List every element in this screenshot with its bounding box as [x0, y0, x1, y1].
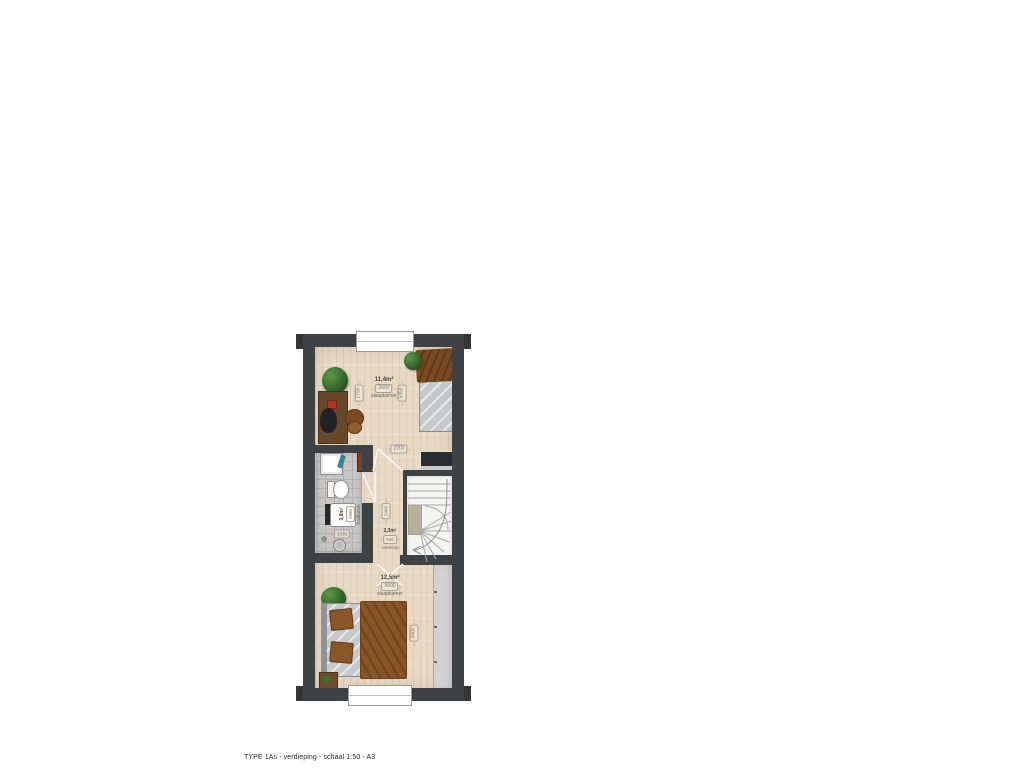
dim-2750: ◁ 2750 ▷ — [355, 380, 364, 405]
shower-head-icon — [321, 536, 327, 542]
dim-arrow-right-icon: ▷ — [398, 538, 401, 542]
wall-outer-right — [452, 334, 464, 701]
room-label-landing: 2,3m² ◁ 940 ▷ overloop — [379, 528, 401, 550]
dim-arrow-left-icon: ◁ — [384, 520, 388, 523]
room-area: 2,3m² — [383, 528, 396, 534]
dim-arrow-right-icon: ▷ — [400, 380, 404, 383]
room-name: slaapkamer — [377, 592, 403, 597]
room-area: 12,5m² — [380, 575, 399, 581]
room-dim: ◁ 3600 ▷ — [377, 582, 402, 591]
room-dim: ◁ 940 ▷ — [379, 535, 401, 544]
dim-arrow-right-icon: ▷ — [357, 380, 361, 383]
dim-arrow-right-icon: ▷ — [394, 387, 397, 391]
dim-arrow-left-icon: ◁ — [400, 403, 404, 406]
dim-1330: ◁ 1330 ▷ — [330, 530, 354, 539]
wall-bedroom-bottom-top — [400, 555, 452, 565]
room-area: 11,4m² — [375, 377, 394, 383]
room-name: badkamer — [356, 504, 361, 524]
floor-plan: 11,4m² ◁ 3600 ▷ slaapkamer ◁ 2750 ▷ ◁ 54… — [0, 0, 1024, 768]
single-bed-duvet — [415, 348, 455, 383]
dim-2200: ◁ 2200 ▷ — [386, 445, 411, 454]
wardrobe — [433, 565, 453, 688]
desk-chair — [320, 408, 337, 433]
nightstand-plant — [323, 675, 331, 683]
dim-arrow-left-icon: ◁ — [371, 387, 374, 391]
room-label-bedroom-top: 11,4m² ◁ 3600 ▷ slaapkamer — [371, 377, 397, 399]
dim-arrow-left-icon: ◁ — [330, 532, 333, 536]
plant-desk — [322, 367, 348, 394]
dim-arrow-right-icon: ▷ — [349, 502, 353, 505]
dim-arrow-right-icon: ▷ — [409, 447, 412, 451]
footstool — [347, 421, 362, 434]
dim-arrow-right-icon: ▷ — [400, 585, 403, 589]
double-bed-headboard — [321, 603, 327, 675]
room-dim: ◁ 3600 ▷ — [371, 384, 396, 393]
stair-landing-mat — [408, 505, 422, 535]
room-name: slaapkamer — [371, 394, 397, 399]
pillow-1 — [329, 608, 354, 631]
built-in-closet — [420, 451, 453, 470]
sheet-caption: TYPE 1As - verdieping - schaal 1:50 - A3 — [244, 754, 375, 761]
dim-arrow-right-icon: ▷ — [412, 620, 416, 623]
shower-drain — [333, 539, 346, 552]
double-bed-duvet — [360, 601, 407, 679]
plant-window — [404, 352, 422, 370]
dim-arrow-left-icon: ◁ — [386, 447, 389, 451]
toilet-bowl — [333, 480, 349, 499]
room-label-bedroom-bottom: 12,5m² ◁ 3600 ▷ slaapkamer — [377, 575, 403, 597]
wall-stub-top-left — [296, 334, 303, 349]
wall-stair-top — [403, 470, 452, 476]
room-name: overloop — [381, 545, 398, 550]
dim-arrow-right-icon: ▷ — [351, 532, 354, 536]
wall-bathroom-right-upper — [362, 445, 373, 472]
pillow-2 — [329, 641, 354, 664]
linework — [0, 0, 1024, 768]
wall-outer-left — [303, 334, 315, 701]
wall-stub-top-right — [464, 334, 471, 349]
window-bottom — [348, 685, 412, 706]
wall-stub-bottom-left — [296, 686, 303, 701]
window-top — [356, 331, 414, 352]
dim-arrow-left-icon: ◁ — [379, 538, 382, 542]
dim-3400: ◁ 3400 ▷ — [410, 620, 419, 645]
dim-arrow-left-icon: ◁ — [377, 585, 380, 589]
dim-5450: ◁ 5450 ▷ — [398, 380, 407, 405]
dim-arrow-right-icon: ▷ — [384, 499, 388, 502]
dim-arrow-left-icon: ◁ — [412, 643, 416, 646]
room-label-bathroom: 3,8m² ◁ 2850 ▷ badkamer — [339, 502, 361, 526]
dim-arrow-left-icon: ◁ — [357, 403, 361, 406]
dim-arrow-left-icon: ◁ — [349, 523, 353, 526]
wall-bathroom-bottom — [315, 553, 373, 563]
page: 11,4m² ◁ 3600 ▷ slaapkamer ◁ 2750 ▷ ◁ 54… — [0, 0, 1024, 768]
wall-stub-bottom-right — [464, 686, 471, 701]
room-area: 3,8m² — [339, 507, 345, 520]
dim-2400: ◁ 2400 ▷ — [382, 499, 391, 523]
room-dim: ◁ 2850 ▷ — [346, 502, 355, 526]
wall-stair-left — [403, 476, 407, 563]
